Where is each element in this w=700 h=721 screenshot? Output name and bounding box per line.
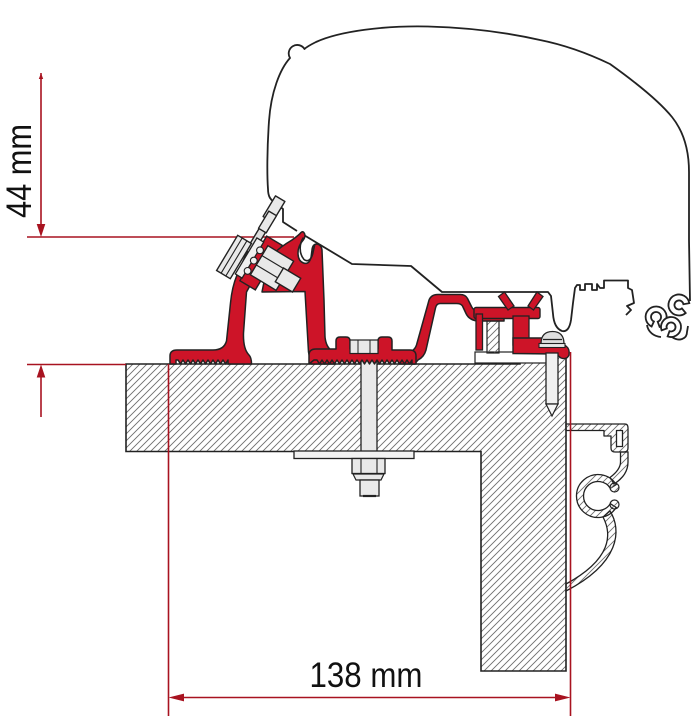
svg-text:44 mm: 44 mm	[0, 124, 39, 218]
svg-text:138 mm: 138 mm	[310, 655, 423, 695]
